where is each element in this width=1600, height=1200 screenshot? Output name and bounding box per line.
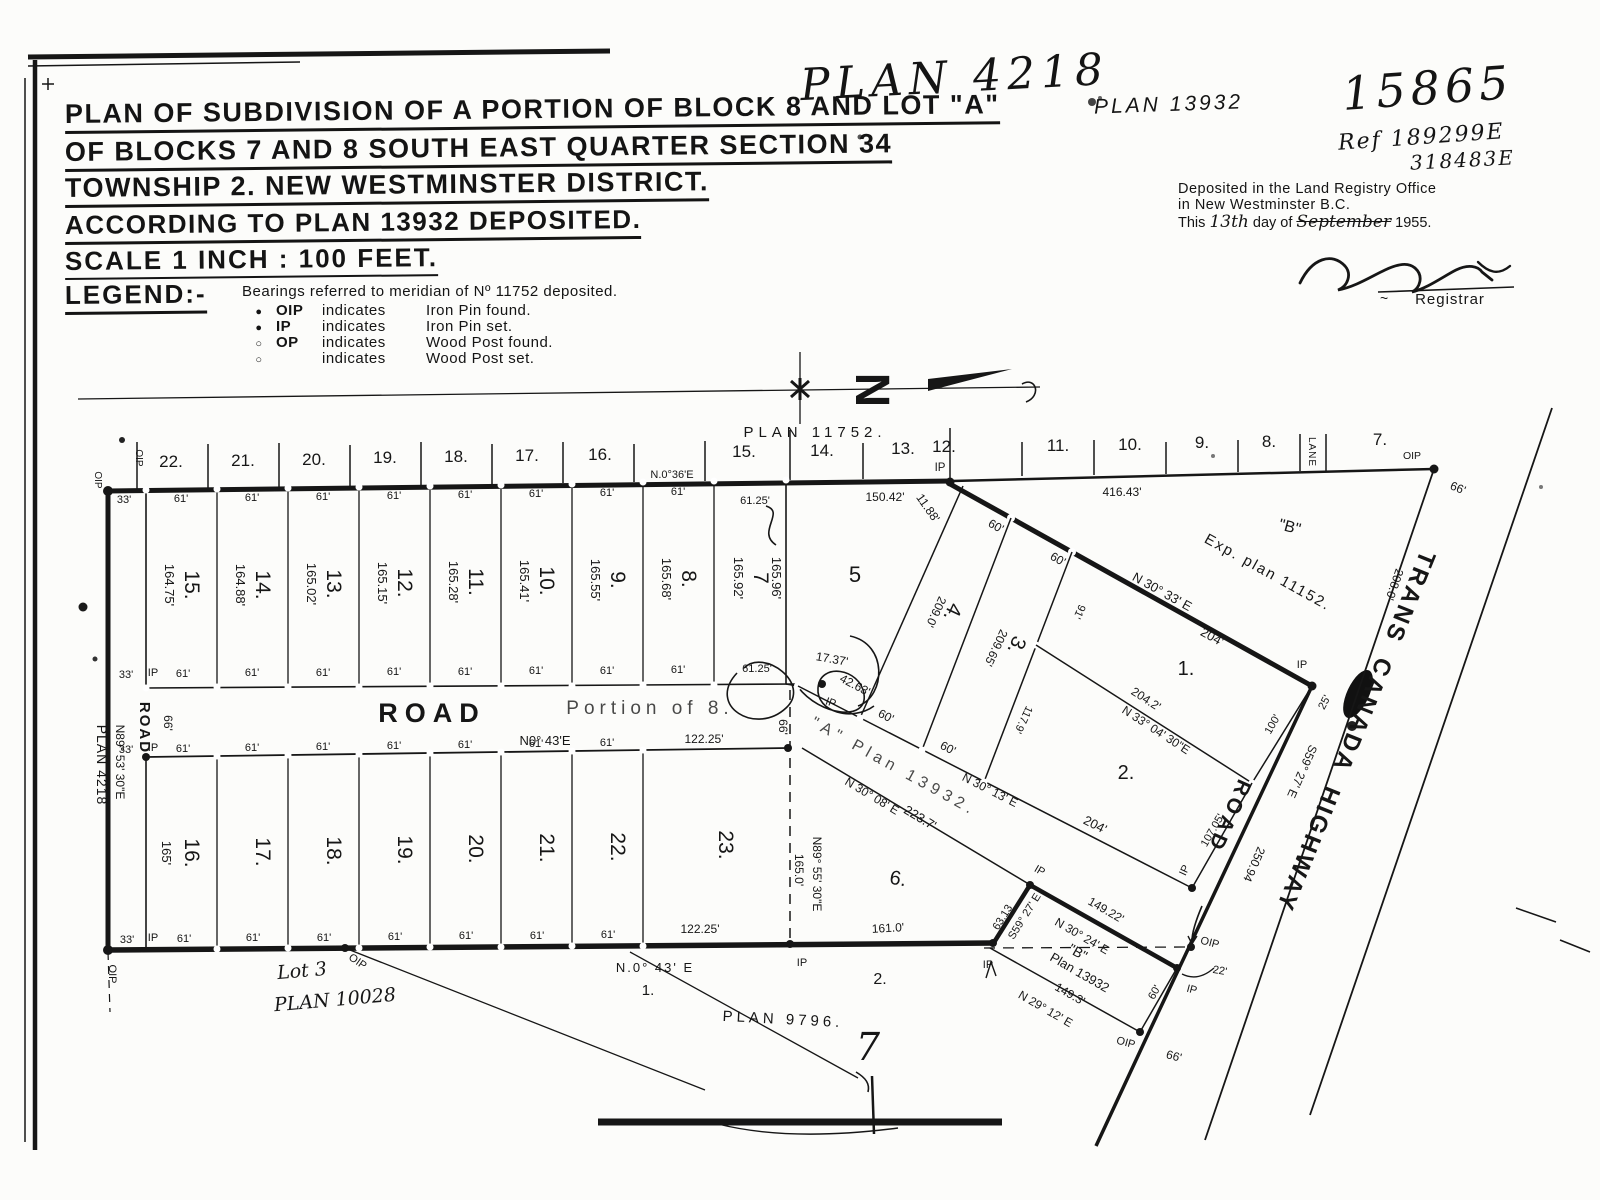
west-margin: OIP OIP ROAD N89° 53' 30"E PLAN 4218 OIP bbox=[92, 449, 153, 1012]
dim-61: 61' bbox=[458, 666, 472, 678]
dim-61: 61' bbox=[600, 737, 614, 749]
legend-ind: indicates bbox=[322, 318, 426, 335]
deposit-month-handwritten: September bbox=[1296, 212, 1391, 232]
dim-61: 61' bbox=[174, 493, 188, 505]
highway: TRANS CANADA HIGHWAY ROAD S59° 27' E 250… bbox=[1096, 408, 1552, 1146]
lot-depth: 165.15' bbox=[375, 562, 390, 604]
lot-number: 11. bbox=[1047, 436, 1069, 455]
dim-61: 61' bbox=[458, 489, 472, 501]
lot-number: 17. bbox=[515, 446, 539, 465]
dim-61: 61' bbox=[317, 932, 331, 944]
legend-desc: Iron Pin found. bbox=[426, 302, 531, 319]
legend-desc: Iron Pin set. bbox=[426, 318, 513, 335]
plan9796-lot-2: 2. bbox=[873, 971, 886, 988]
lot-depth: 165.41' bbox=[517, 560, 532, 602]
lot7-big-label: 7 bbox=[856, 1025, 881, 1069]
survey-plan-sheet: N PLAN 11752. 22. 21. 20. 19. 18. 17. 16… bbox=[0, 0, 1600, 1200]
ref-number-2: 318483E bbox=[1410, 147, 1516, 173]
lot-number: 22. bbox=[159, 452, 183, 471]
ip-marker-label: IP bbox=[148, 667, 158, 679]
oip-marker-label: OIP bbox=[1199, 935, 1220, 951]
dim-17: 17.37' bbox=[815, 649, 849, 668]
east-diagonal-lots: 60' 60' N 30° 33' E 204' 209.0' 209.65' … bbox=[798, 484, 1334, 892]
dim-61: 61' bbox=[671, 664, 685, 676]
plan9796-lot-1: 1. bbox=[642, 982, 655, 999]
dim-61: 61' bbox=[246, 932, 260, 944]
lot-depth-east: 165.96' bbox=[769, 557, 784, 599]
dim-60: 60' bbox=[1146, 983, 1164, 1001]
title-line-3: TOWNSHIP 2. NEW WESTMINSTER DISTRICT. bbox=[65, 167, 709, 208]
ip-marker-label: IP bbox=[1297, 659, 1307, 671]
dim-60: 60' bbox=[986, 516, 1006, 536]
lot-depth: 165' bbox=[159, 841, 174, 865]
bottom-annotations: OIP N.0° 43' E 1. IP 2. Lot 3 PLAN 10028… bbox=[272, 950, 887, 1092]
oip-marker-label: OIP bbox=[106, 965, 118, 984]
iron-pin-found-icon: ● bbox=[242, 306, 276, 318]
lot-number: 9. bbox=[606, 571, 629, 589]
dim-61: 61' bbox=[316, 667, 330, 679]
road-label-diagonal: ROAD bbox=[1203, 776, 1256, 856]
iron-pin-set-icon: ● bbox=[242, 322, 276, 334]
dim-2237: 223.7' bbox=[901, 802, 939, 833]
dim-61: 61' bbox=[388, 931, 402, 943]
lot-number: 2. bbox=[1118, 762, 1135, 784]
dim-61: 61' bbox=[245, 492, 259, 504]
lot-depth: 165.28' bbox=[446, 561, 461, 603]
dim-60: 60' bbox=[876, 706, 896, 726]
dim-61: 61' bbox=[316, 741, 330, 753]
dim-66: 66' bbox=[1448, 479, 1468, 498]
dim-42: 42.63' bbox=[837, 671, 872, 699]
dim-61: 61' bbox=[459, 930, 473, 942]
lot-number: 14. bbox=[810, 441, 834, 460]
dim-60: 60' bbox=[1048, 549, 1068, 569]
dim-161: 161.0' bbox=[871, 920, 904, 936]
lot-number: 17. bbox=[251, 837, 274, 866]
oip-marker-label: OIP bbox=[1403, 450, 1421, 462]
oip-marker-label: OIP bbox=[1115, 1035, 1136, 1051]
lot-number: 14. bbox=[251, 570, 274, 599]
legend-ind: indicates bbox=[322, 350, 426, 367]
lot-number: 5 bbox=[849, 562, 861, 587]
lot3-label: Lot 3 bbox=[275, 958, 328, 984]
lot-number: 15. bbox=[732, 442, 756, 461]
dim-1493: 149.3' bbox=[1053, 980, 1088, 1008]
dim-1188: 11.88' bbox=[913, 491, 942, 525]
plan-11752-label: PLAN 11752. bbox=[743, 424, 886, 441]
dim-165: 165.0' bbox=[792, 854, 806, 886]
ip-marker-label: IP bbox=[935, 462, 946, 474]
dim-61: 61' bbox=[245, 667, 259, 679]
dim-22: 22' bbox=[1212, 964, 1228, 978]
oip-marker-label: OIP bbox=[346, 951, 368, 972]
road-label: ROAD bbox=[378, 698, 486, 728]
dim-61: 61' bbox=[176, 743, 190, 755]
lot-number: 1. bbox=[1178, 658, 1195, 680]
deposit-year: 1955. bbox=[1395, 215, 1431, 231]
deposit-line-3: This 13th day of September 1955. bbox=[1178, 214, 1431, 232]
dim-61: 61' bbox=[387, 740, 401, 752]
parcel-b-south: 63.13 S59° 27' E IP IP 149.22' N 30° 24'… bbox=[983, 863, 1228, 1065]
dim-60: 60' bbox=[938, 738, 958, 758]
lot-depth: 164.88' bbox=[233, 564, 248, 606]
deposit-this: This bbox=[1178, 215, 1205, 231]
dim-416: 416.43' bbox=[1103, 485, 1142, 499]
lot-number: 12. bbox=[932, 437, 956, 456]
bearing-n3008: N 30° 08' E bbox=[842, 774, 901, 817]
lot-number: 6. bbox=[888, 867, 908, 892]
lot-depth: 165.02' bbox=[304, 563, 319, 605]
plan-10028-label: PLAN 10028 bbox=[272, 984, 397, 1017]
wood-post-set-icon: ○ bbox=[242, 354, 276, 366]
dim-61: 61' bbox=[601, 929, 615, 941]
lot-number: 9. bbox=[1195, 433, 1209, 452]
dim-1179: 117.9' bbox=[1012, 704, 1035, 735]
dim-91: 91' bbox=[1071, 603, 1088, 621]
lot-number: 18. bbox=[322, 836, 345, 865]
flourish bbox=[766, 506, 776, 545]
north-arrow: N PLAN 11752. bbox=[78, 352, 1040, 441]
dim-61: 61' bbox=[671, 486, 685, 498]
dim-61: 61' bbox=[529, 738, 543, 750]
dim-61: 61' bbox=[387, 490, 401, 502]
plan-9796-label: PLAN 9796. bbox=[722, 1008, 844, 1031]
lot-number: 18. bbox=[444, 447, 468, 466]
ip-marker-label: IP bbox=[1177, 863, 1192, 878]
dim-66: 66' bbox=[161, 715, 175, 731]
scale-label: SCALE 1 INCH : 100 FEET. bbox=[65, 244, 438, 280]
dim-61: 61' bbox=[458, 739, 472, 751]
legend-abbr: OIP bbox=[276, 302, 322, 319]
legend-item: ○indicatesWood Post set. bbox=[242, 350, 534, 367]
lot-number: 22. bbox=[606, 832, 629, 861]
legend-ind: indicates bbox=[322, 334, 426, 351]
lot-number: 19. bbox=[373, 448, 397, 467]
tilde-mark: ~ bbox=[1380, 290, 1388, 306]
lot-number: 10. bbox=[535, 566, 558, 595]
deposit-line-1: Deposited in the Land Registry Office bbox=[1178, 182, 1436, 197]
legend-heading: LEGEND:- bbox=[65, 281, 207, 316]
parcel-b-upper-label: "B" bbox=[1277, 516, 1303, 538]
dim-33: 33' bbox=[117, 494, 131, 506]
bearing-n043e-south: N.0° 43' E bbox=[616, 960, 694, 975]
portion-of-8-label: Portion of 8. bbox=[566, 698, 733, 719]
dim-61: 61' bbox=[529, 665, 543, 677]
lot-number: 23. bbox=[714, 830, 737, 859]
bearing-n043e: N0° 43'E bbox=[519, 733, 570, 748]
dim-61: 61' bbox=[387, 666, 401, 678]
lot-number: 11. bbox=[464, 568, 487, 596]
deposit-day-handwritten: 13th bbox=[1209, 212, 1248, 232]
lot-number: 8. bbox=[1262, 432, 1276, 451]
dim-150: 150.42' bbox=[866, 490, 905, 504]
dim-61: 61' bbox=[600, 665, 614, 677]
legend-desc: Wood Post found. bbox=[426, 334, 553, 351]
dim-61: 61' bbox=[600, 487, 614, 499]
deposit-line-2: in New Westminster B.C. bbox=[1178, 198, 1350, 213]
lot-depth: 165.55' bbox=[588, 559, 603, 601]
bearing-s5927: S59° 27' E bbox=[1284, 743, 1320, 800]
lot-number: 15. bbox=[180, 570, 203, 599]
legend-item: ●IPindicatesIron Pin set. bbox=[242, 318, 513, 335]
bearing-n036e: N.0°36'E bbox=[650, 469, 693, 481]
dim-61: 61' bbox=[316, 491, 330, 503]
ip-marker-label: IP bbox=[797, 957, 807, 969]
lot-number: 12. bbox=[393, 568, 416, 597]
plan-4218-margin-label: PLAN 4218 bbox=[94, 725, 110, 806]
lower-block-lots: N0° 43'E 33' IP 61' 61' 61' 61' 61' 61' … bbox=[103, 732, 997, 955]
legend-abbr: OP bbox=[276, 334, 322, 351]
dim-33: 33' bbox=[120, 934, 134, 946]
lot-number: 7 bbox=[749, 572, 772, 584]
lot-number: 19. bbox=[393, 835, 416, 864]
dim-25: 25' bbox=[1316, 693, 1333, 711]
oip-marker-label: OIP bbox=[92, 471, 103, 489]
dim-122: 122.25' bbox=[685, 732, 724, 746]
lot-depth: 164.75' bbox=[162, 564, 177, 606]
legend-item: ○OPindicatesWood Post found. bbox=[242, 334, 553, 351]
lot-number: 16. bbox=[588, 445, 612, 464]
dim-204: 204' bbox=[1198, 624, 1226, 649]
file-number: 15865 bbox=[1341, 58, 1515, 118]
dim-25094: 250.94 bbox=[1240, 845, 1268, 885]
exp-plan-label: Exp. plan 11152. bbox=[1201, 530, 1334, 614]
legend-ind: indicates bbox=[322, 302, 426, 319]
lot-number: 7. bbox=[1373, 430, 1387, 449]
lot-depth: 165.92' bbox=[731, 557, 746, 599]
dim-61: 61' bbox=[177, 933, 191, 945]
signature-stroke bbox=[1300, 259, 1492, 292]
lot-number: 8. bbox=[677, 570, 700, 588]
ip-marker-label: IP bbox=[148, 932, 158, 944]
dim-61: 61' bbox=[176, 668, 190, 680]
bearing-n8955: N89° 55' 30"E bbox=[810, 837, 824, 912]
lot-number: 16. bbox=[180, 838, 203, 867]
dim-61: 61' bbox=[245, 742, 259, 754]
registrar-signature: ~ Registrar bbox=[1300, 259, 1514, 308]
lot-number: 20. bbox=[302, 450, 326, 469]
title-line-4: ACCORDING TO PLAN 13932 DEPOSITED. bbox=[65, 206, 642, 245]
lot-number: 13. bbox=[891, 439, 915, 458]
dim-61: 61' bbox=[530, 930, 544, 942]
lot-number: 21. bbox=[535, 833, 558, 862]
dim-66: 66' bbox=[776, 719, 790, 735]
lane-label: LANE bbox=[1306, 437, 1317, 467]
dim-6125: 61.25' bbox=[740, 495, 770, 507]
deposit-dayof: day of bbox=[1253, 215, 1293, 231]
dim-61: 61' bbox=[529, 488, 543, 500]
north-letter: N bbox=[845, 373, 898, 408]
dim-122: 122.25' bbox=[681, 922, 720, 936]
dim-100: 100' bbox=[1263, 713, 1284, 737]
trans-canada-highway-label: TRANS CANADA HIGHWAY bbox=[1270, 547, 1440, 916]
lot-number: 20. bbox=[464, 834, 487, 863]
lot-depth: 165.68' bbox=[659, 558, 674, 600]
oip-marker-label: OIP bbox=[133, 449, 144, 467]
ip-marker-label: IP bbox=[1032, 863, 1047, 879]
legend-note: Bearings referred to meridian of Nº 1175… bbox=[242, 283, 618, 300]
lot-number: 21. bbox=[231, 451, 255, 470]
ip-marker-label: IP bbox=[1185, 983, 1198, 997]
lot-number: 10. bbox=[1118, 435, 1142, 454]
road-label-west: ROAD bbox=[136, 702, 153, 754]
bearing-n8953: N89° 53' 30"E bbox=[113, 725, 127, 800]
dim-66: 66' bbox=[1165, 1047, 1184, 1065]
legend-abbr: IP bbox=[276, 318, 322, 335]
wood-post-found-icon: ○ bbox=[242, 338, 276, 350]
legend-item: ●OIPindicatesIron Pin found. bbox=[242, 302, 531, 319]
legend-desc: Wood Post set. bbox=[426, 350, 534, 367]
lot-number: 13. bbox=[322, 569, 345, 598]
middle-road: ROAD Portion of 8. 66' 66' 17.37' 42.63'… bbox=[161, 636, 879, 944]
registrar-label: Registrar bbox=[1415, 291, 1485, 308]
dim-33: 33' bbox=[119, 669, 133, 681]
